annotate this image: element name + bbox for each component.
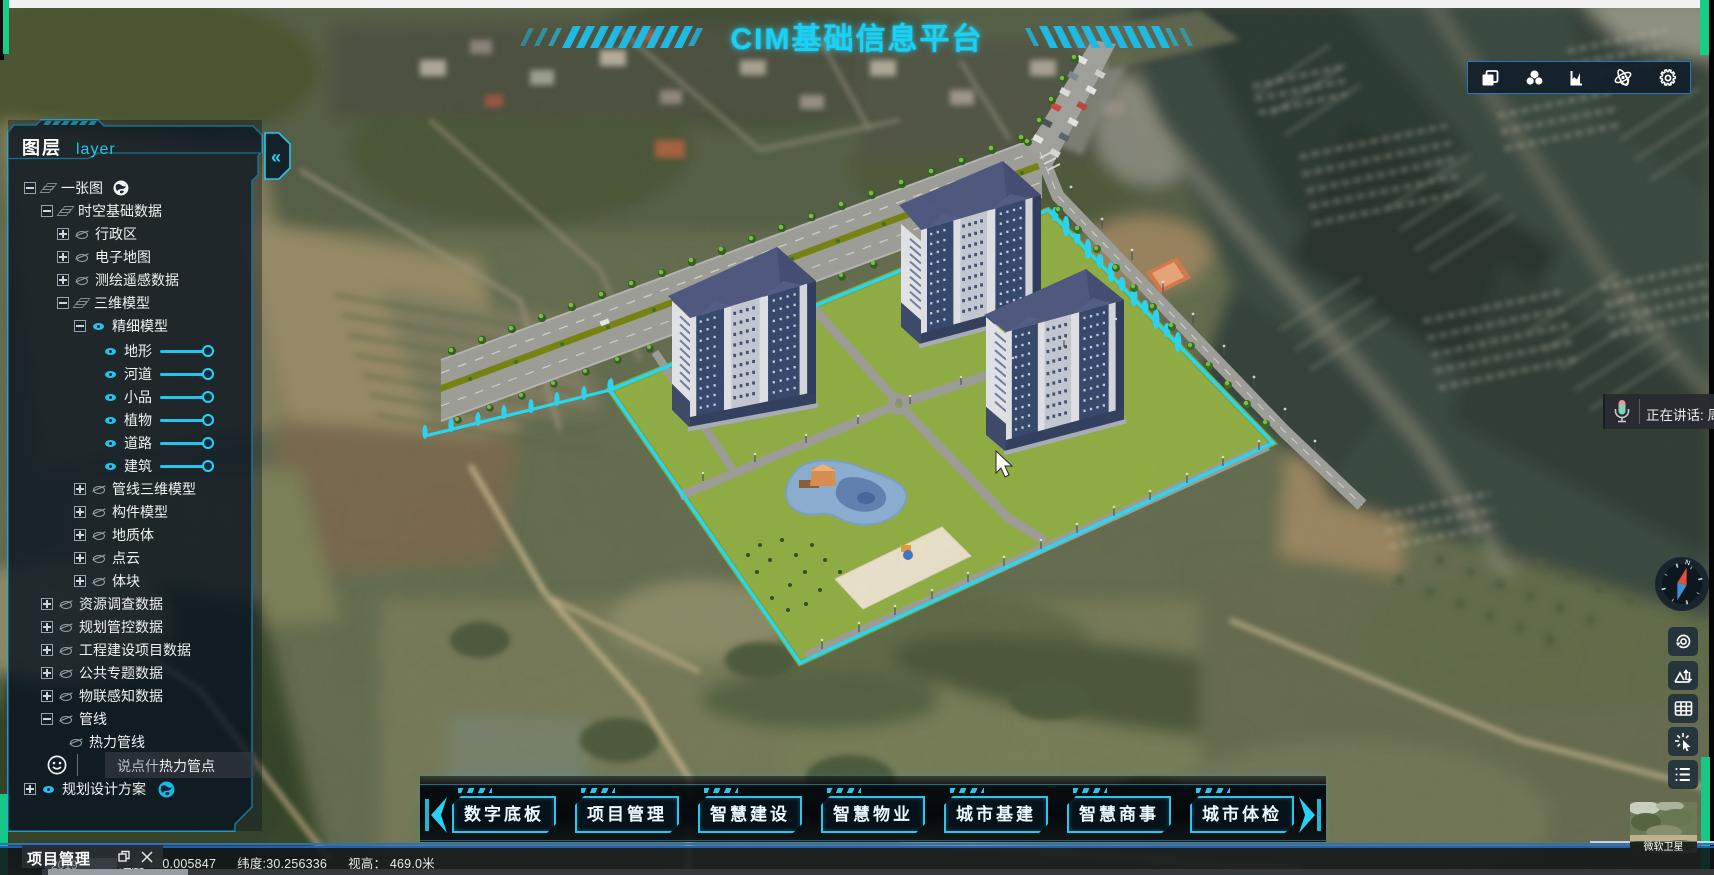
svg-text:«: «: [271, 147, 281, 167]
